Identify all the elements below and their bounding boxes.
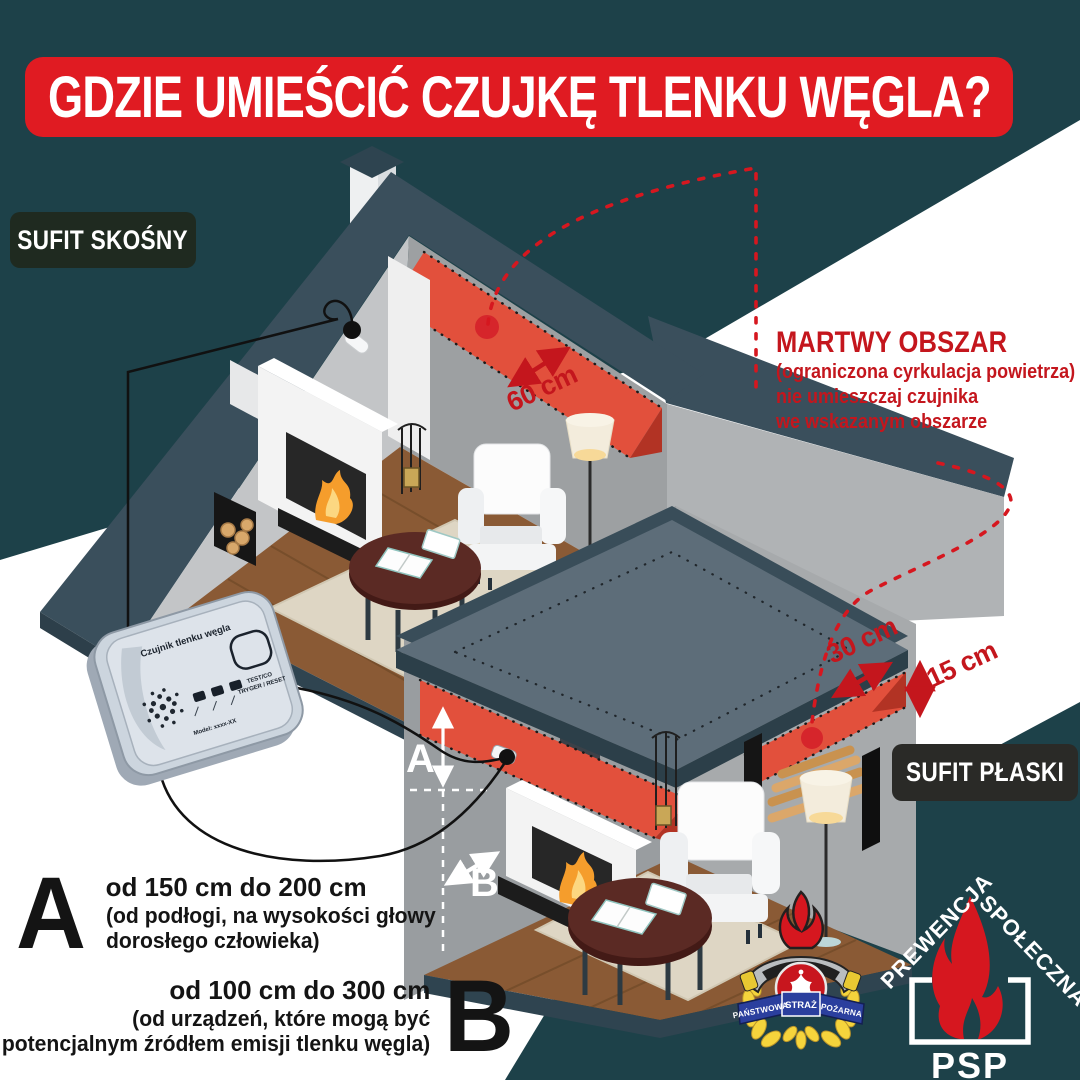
infographic-canvas: A B bbox=[0, 0, 1080, 1080]
badge-text-center: STRAŻ bbox=[785, 1000, 817, 1011]
point-b-range: od100 cmdo300 cm bbox=[0, 975, 430, 1006]
title-banner: GDZIE UMIEŚCIĆ CZUJKĘ TLENKU WĘGLA? bbox=[25, 57, 1013, 137]
point-a-note: A od150 cmdo200 cm (od podłogi, na wysok… bbox=[16, 872, 449, 956]
point-a-range: od150 cmdo200 cm bbox=[106, 872, 449, 903]
point-b-letter: B bbox=[444, 975, 514, 1059]
psp-text-psp: PSP bbox=[931, 1045, 1009, 1080]
measure-15cm: 15 cm bbox=[922, 635, 1002, 693]
flat-ceiling-label: SUFIT PŁASKI bbox=[892, 744, 1078, 801]
fireplace-tools-2 bbox=[652, 732, 680, 830]
marker-b-label: B bbox=[470, 861, 499, 905]
dead-zone-note: MARTWY OBSZAR (ograniczona cyrkulacja po… bbox=[776, 326, 1076, 435]
dead-zone-heading: MARTWY OBSZAR bbox=[776, 326, 1031, 360]
point-a-letter: A bbox=[16, 872, 86, 956]
point-b-note: od100 cmdo300 cm (od urządzeń, które mog… bbox=[10, 975, 518, 1059]
sloped-ceiling-label: SUFIT SKOŚNY bbox=[10, 212, 196, 268]
page-title: GDZIE UMIEŚCIĆ CZUJKĘ TLENKU WĘGLA? bbox=[48, 64, 991, 131]
detector-dot-flat bbox=[801, 727, 823, 749]
